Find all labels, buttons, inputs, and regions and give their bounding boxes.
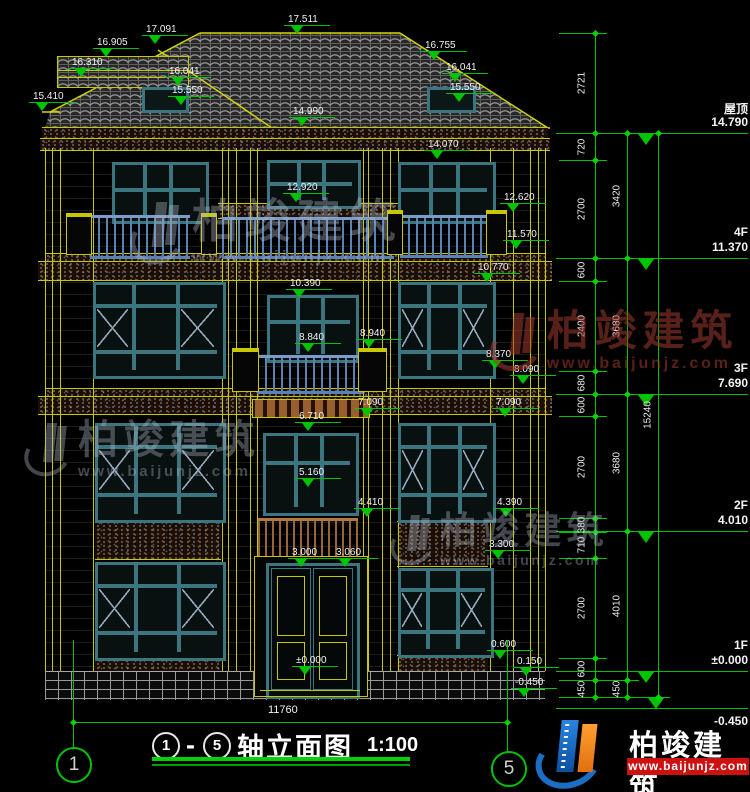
window-mullion	[427, 426, 431, 514]
elevation-mark-text: 3.060	[336, 547, 361, 558]
elevation-mark-text: 16.310	[72, 57, 103, 68]
elevation-mark-text: 10.390	[290, 278, 321, 289]
window-mullion	[401, 304, 487, 308]
dim-ext-line	[559, 33, 607, 34]
dim-tick	[504, 719, 511, 726]
window-glazing-cross	[99, 450, 130, 490]
floor-level-value: 11.370	[598, 240, 750, 254]
elevation-mark-arrow-icon	[431, 151, 443, 159]
door-panel	[277, 576, 305, 636]
dim-tick	[592, 555, 599, 562]
title-axis-end-circle: 5	[203, 732, 231, 760]
elevation-mark-arrow-icon	[295, 559, 307, 567]
elevation-mark-text: 8.840	[299, 332, 324, 343]
window	[398, 282, 496, 379]
dim-tick	[655, 130, 662, 137]
axis-line-1	[73, 640, 74, 747]
window-mullion	[401, 445, 487, 449]
dim-tick	[592, 278, 599, 285]
elevation-mark-text: 16.041	[169, 66, 200, 77]
window-mullion	[96, 350, 217, 354]
dim-ext-line	[559, 371, 607, 372]
elevation-mark-text: 4.390	[497, 497, 522, 508]
title-underline-thin	[152, 764, 410, 766]
brand-url: www.baijunjz.com	[627, 758, 749, 775]
window-mullion	[98, 445, 217, 449]
watermark-name: 柏竣建筑	[547, 310, 739, 352]
elevation-mark-text: 12.920	[287, 182, 318, 193]
dim-tick	[624, 528, 631, 535]
elevation-mark-arrow-icon	[481, 274, 493, 282]
column-line	[538, 148, 539, 671]
column-line	[45, 148, 46, 671]
elevation-mark-arrow-icon	[492, 551, 504, 559]
dim-value: 380	[577, 517, 588, 534]
elevation-mark-text: -0.450	[515, 677, 543, 688]
elevation-mark-arrow-icon	[453, 94, 465, 102]
dim-ext-line	[591, 258, 639, 259]
elevation-mark-text: 10.770	[478, 262, 509, 273]
elevation-mark-arrow-icon	[75, 69, 87, 77]
dim-value: 600	[577, 661, 588, 678]
title-underline-thick	[152, 757, 410, 761]
pillar	[387, 210, 403, 255]
pillar	[66, 213, 92, 255]
elevation-mark-arrow-icon	[499, 409, 511, 417]
window-glazing-cross	[402, 309, 423, 347]
window-mullion	[296, 298, 300, 354]
elevation-mark-text: 7.090	[496, 397, 521, 408]
elevation-mark-arrow-icon	[449, 74, 461, 82]
dim-value: 600	[577, 261, 588, 278]
level-flag-arrow-icon	[638, 532, 654, 543]
dim-value: 3680	[612, 315, 623, 337]
pillar	[358, 348, 387, 392]
floor-level-value: 7.690	[598, 376, 750, 390]
window-mullion	[98, 584, 217, 588]
floor-label: 2F	[598, 498, 750, 512]
window	[95, 423, 226, 523]
elevation-mark-arrow-icon	[290, 194, 302, 202]
elevation-mark-arrow-icon	[291, 26, 303, 34]
elevation-mark-text: 16.755	[425, 40, 456, 51]
window	[267, 295, 359, 363]
elevation-mark-text: 17.091	[146, 24, 177, 35]
dim-tick	[70, 719, 77, 726]
dim-ext-line	[559, 416, 607, 417]
dim-value: 450	[612, 680, 623, 697]
dim-tick	[624, 677, 631, 684]
dim-value: 2700	[577, 597, 588, 619]
elevation-mark-text: 16.041	[446, 62, 477, 73]
level-flag-arrow-icon	[638, 134, 654, 145]
elevation-mark-text: 11.570	[507, 229, 537, 240]
elevation-mark-arrow-icon	[299, 667, 311, 675]
window-mullion	[115, 188, 200, 192]
elevation-mark-text: 3.000	[292, 547, 317, 558]
dim-value: 4010	[612, 594, 623, 616]
window-mullion	[401, 630, 485, 634]
window-mullion	[456, 571, 460, 649]
window	[93, 282, 226, 379]
dim-value: 450	[577, 680, 588, 697]
elevation-mark-text: 15.550	[172, 85, 203, 96]
window-mullion	[134, 426, 138, 514]
window-glazing-cross	[97, 309, 128, 347]
floor-level-value: ±0.000	[598, 653, 750, 667]
floor-level-value: 14.790	[598, 115, 750, 129]
window-mullion	[98, 493, 217, 497]
level-flag-arrow-icon	[638, 672, 654, 683]
window-mullion	[266, 461, 350, 465]
elevation-mark-arrow-icon	[518, 689, 530, 697]
cornice-band	[397, 521, 488, 567]
pillar	[486, 210, 507, 255]
window-mullion	[321, 298, 325, 354]
elevation-mark-arrow-icon	[100, 49, 112, 57]
window-mullion	[134, 565, 138, 652]
elevation-mark-text: 12.620	[504, 192, 535, 203]
dim-tick	[624, 255, 631, 262]
elevation-mark-text: 4.410	[358, 497, 383, 508]
window-mullion	[177, 565, 181, 652]
door-threshold	[260, 690, 360, 697]
window-glazing-cross	[182, 589, 214, 628]
elevation-mark-arrow-icon	[361, 509, 373, 517]
balcony-railing	[257, 355, 363, 394]
elevation-mark-arrow-icon	[489, 361, 501, 369]
dim-chain-line	[627, 133, 628, 697]
elevation-mark-arrow-icon	[428, 52, 440, 60]
axis-bubble-1: 1	[56, 747, 92, 783]
elevation-mark-arrow-icon	[339, 559, 351, 567]
dim-tick	[592, 413, 599, 420]
window-glazing-cross	[461, 593, 482, 627]
window-glazing-cross	[182, 450, 214, 490]
door-panel	[319, 576, 347, 636]
elevation-mark-arrow-icon	[520, 668, 532, 676]
elevation-mark-arrow-icon	[494, 651, 506, 659]
elevation-mark-text: 8.370	[486, 349, 511, 360]
floor-level-value: 4.010	[598, 513, 750, 527]
dim-value: 680	[577, 374, 588, 391]
elevation-mark-text: 5.160	[299, 467, 324, 478]
window-mullion	[177, 426, 181, 514]
window-mullion	[458, 426, 462, 514]
window-mullion	[401, 493, 487, 497]
window-glazing-cross	[402, 450, 423, 490]
dim-value: 2400	[577, 315, 588, 337]
elevation-mark-arrow-icon	[149, 36, 161, 44]
axis-bubble-5: 5	[491, 751, 527, 787]
window-glazing-cross	[181, 309, 214, 347]
dim-ext-line	[622, 133, 670, 134]
column-line	[60, 148, 61, 671]
balcony-railing	[90, 215, 190, 259]
floor-label: 4F	[598, 225, 750, 239]
elevation-mark-text: 0.600	[491, 639, 516, 650]
elevation-mark-arrow-icon	[302, 344, 314, 352]
column-line	[545, 148, 546, 671]
window	[95, 562, 226, 661]
elevation-mark-text: ±0.000	[296, 655, 327, 666]
brand-logo: 柏竣建筑 www.baijunjz.com	[533, 714, 747, 788]
floor-label: 3F	[598, 361, 750, 375]
window-mullion	[98, 631, 217, 635]
dim-ext-line	[591, 531, 639, 532]
elevation-mark-arrow-icon	[507, 204, 519, 212]
window-mullion	[132, 285, 136, 370]
dim-ext-line	[559, 558, 607, 559]
floor-label: 1F	[598, 638, 750, 652]
window-glazing-cross	[99, 589, 130, 628]
window-glazing-cross	[463, 450, 484, 490]
dim-value: 600	[577, 397, 588, 414]
elevation-mark-text: 6.710	[299, 411, 324, 422]
elevation-mark-text: 7.090	[358, 397, 383, 408]
dim-ext-line	[559, 658, 607, 659]
dim-ext-line	[622, 697, 670, 698]
elevation-mark-arrow-icon	[296, 118, 308, 126]
elevation-mark-arrow-icon	[361, 409, 373, 417]
cad-elevation-canvas: 17.51116.90517.09116.31016.04115.55015.4…	[0, 0, 750, 792]
window	[398, 568, 494, 658]
title-axis-start-circle: 1	[152, 732, 180, 760]
window	[398, 423, 496, 523]
window-mullion	[294, 436, 298, 507]
dim-value: 2700	[577, 456, 588, 478]
elevation-mark-text: 14.990	[293, 106, 324, 117]
dim-value: 15240	[643, 401, 654, 429]
axis-line-5	[507, 640, 508, 751]
dim-tick	[624, 391, 631, 398]
level-flag-arrow-icon	[638, 259, 654, 270]
brand-name: 柏竣建筑	[629, 722, 747, 792]
elevation-mark-text: 8.940	[360, 328, 385, 339]
elevation-mark-arrow-icon	[510, 241, 522, 249]
dim-ext-line	[559, 281, 607, 282]
window-mullion	[176, 285, 180, 370]
elevation-mark-arrow-icon	[302, 479, 314, 487]
elevation-mark-arrow-icon	[175, 97, 187, 105]
window-mullion	[401, 188, 487, 192]
dim-chain-line	[658, 133, 659, 697]
elevation-mark-text: 17.511	[288, 14, 318, 25]
level-flag-arrow-icon	[648, 698, 664, 709]
elevation-mark-text: 16.905	[97, 37, 128, 48]
dim-value: 720	[577, 138, 588, 155]
dim-value: 3680	[612, 451, 623, 473]
column-line	[513, 148, 514, 671]
elevation-mark-text: 8.090	[514, 364, 539, 375]
pillar	[201, 213, 217, 255]
window-mullion	[426, 571, 430, 649]
balcony-railing	[222, 217, 394, 259]
title-scale: 1:100	[367, 734, 418, 757]
cornice-band	[95, 519, 221, 560]
elevation-mark-arrow-icon	[293, 290, 305, 298]
brand-logo-windows	[561, 724, 570, 768]
column-line	[530, 148, 531, 671]
window-mullion	[270, 320, 350, 324]
dim-tick	[592, 157, 599, 164]
overall-dim-text: 11760	[268, 705, 298, 716]
window-mullion	[401, 350, 487, 354]
window-mullion	[427, 285, 431, 370]
window-mullion	[96, 304, 217, 308]
elevation-mark-arrow-icon	[302, 423, 314, 431]
overall-dim-line	[73, 722, 507, 723]
elevation-mark-arrow-icon	[500, 509, 512, 517]
window-mullion	[401, 588, 485, 592]
dim-value: 2721	[577, 72, 588, 94]
elevation-mark-text: 15.410	[33, 91, 64, 102]
dim-value: 710	[577, 537, 588, 554]
dim-ext-line	[591, 394, 639, 395]
elevation-mark-text: 14.070	[428, 139, 459, 150]
elevation-mark-text: 3.300	[489, 539, 514, 550]
pillar	[232, 348, 259, 392]
window-glazing-cross	[402, 593, 422, 627]
dim-tick	[592, 30, 599, 37]
elevation-mark-text: 15.550	[450, 82, 481, 93]
window-mullion	[458, 285, 462, 370]
dim-ext-line	[559, 160, 607, 161]
balcony-railing	[400, 215, 488, 258]
elevation-mark-arrow-icon	[517, 376, 529, 384]
window-glazing-cross	[463, 309, 484, 347]
elevation-mark-text: 0.150	[517, 656, 542, 667]
elevation-mark-arrow-icon	[363, 340, 375, 348]
wall-top-line	[45, 150, 545, 151]
column-line	[52, 148, 53, 671]
elevation-mark-arrow-icon	[36, 103, 48, 111]
dim-value: 3420	[612, 184, 623, 206]
dim-value: 2700	[577, 198, 588, 220]
